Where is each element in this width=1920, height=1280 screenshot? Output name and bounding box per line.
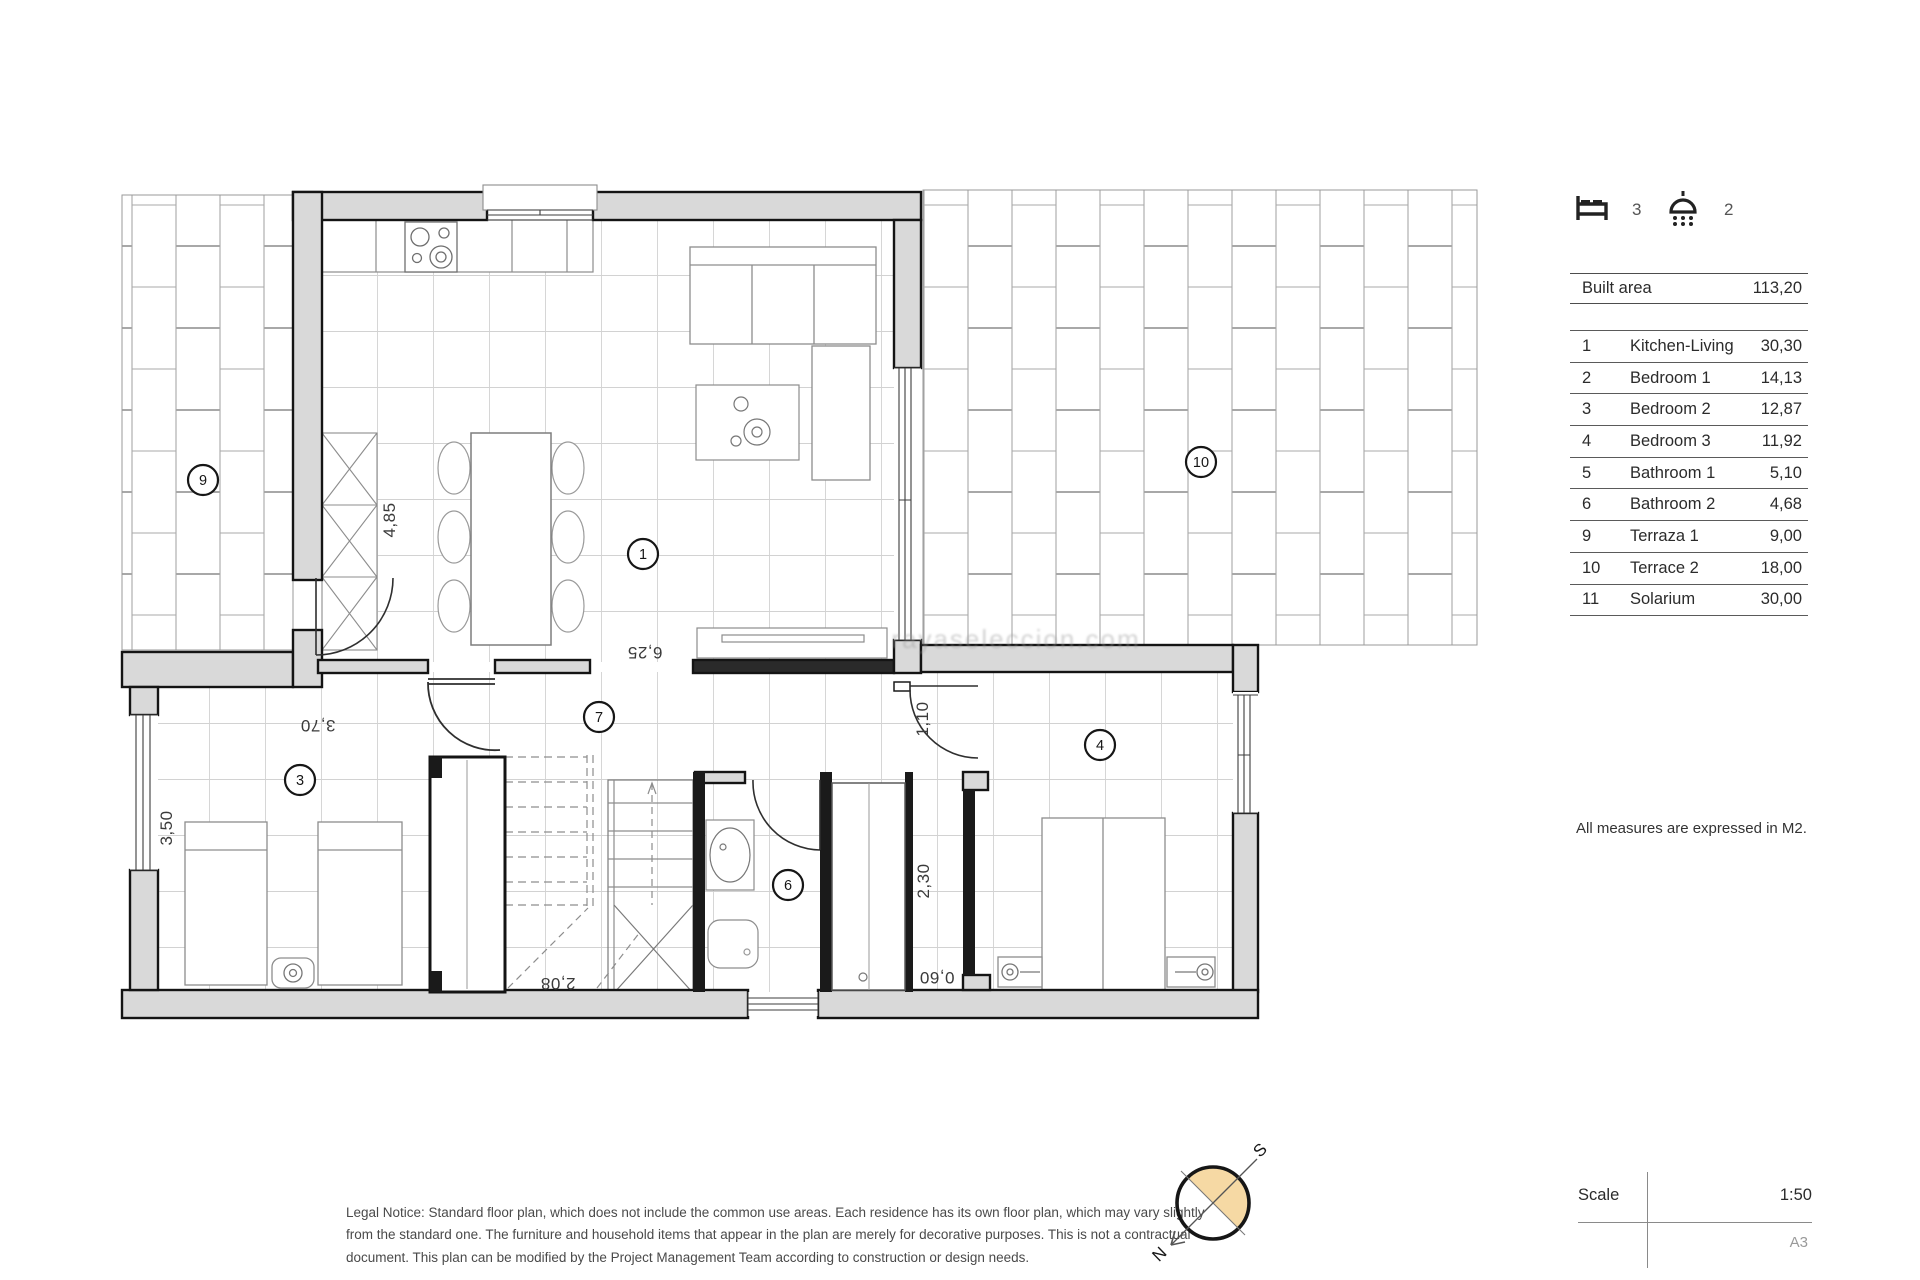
area-row: 4Bedroom 311,92	[1570, 426, 1808, 458]
area-row-value: 11,92	[1762, 432, 1808, 451]
svg-text:6: 6	[784, 878, 792, 894]
area-row-value: 30,30	[1761, 337, 1808, 356]
area-row-number: 9	[1570, 527, 1630, 546]
svg-text:9: 9	[199, 473, 207, 489]
legal-notice-line: Legal Notice: Standard floor plan, which…	[346, 1202, 1204, 1224]
area-row: 6Bathroom 24,68	[1570, 489, 1808, 521]
area-row-value: 9,00	[1770, 527, 1808, 546]
area-row: 11Solarium30,00	[1570, 585, 1808, 617]
kitchen-cabinet-shelves	[322, 433, 377, 650]
area-row-number: 11	[1570, 590, 1630, 609]
area-row: 1Kitchen-Living30,30	[1570, 331, 1808, 363]
dining-table	[438, 433, 584, 645]
area-row-number: 3	[1570, 400, 1630, 419]
area-row-number: 1	[1570, 337, 1630, 356]
area-row-value: 18,00	[1761, 559, 1808, 578]
floorplan-sheet: 1 3 4 6 7 9 10 4,85 6,25 3,70 3,50 1,10 …	[0, 0, 1920, 1280]
toilet	[708, 920, 758, 968]
bed-icon	[1576, 194, 1608, 222]
shower-icon	[1668, 190, 1698, 228]
room-circle-kitchen-living: 1	[628, 539, 658, 569]
area-row-number: 4	[1570, 432, 1630, 451]
areas-table: Built area 113,20 1Kitchen-Living30,302B…	[1570, 273, 1808, 616]
legal-notice-line: document. This plan can be modified by t…	[346, 1247, 1204, 1269]
area-row-number: 5	[1570, 464, 1630, 483]
dim-kitchen-depth: 4,85	[380, 502, 399, 537]
area-row-value: 5,10	[1770, 464, 1808, 483]
area-row-number: 6	[1570, 495, 1630, 514]
room-circle-bedroom3: 4	[1085, 730, 1115, 760]
stove-icon	[405, 222, 457, 272]
dim-bedroom2-width: 3,70	[300, 716, 335, 735]
room-circle-terrace2: 10	[1186, 447, 1216, 477]
scale-block: Scale 1:50 A3	[1578, 1172, 1812, 1268]
built-area-value: 113,20	[1753, 279, 1808, 298]
dim-bedroom3-door: 1,10	[913, 701, 932, 736]
scale-label: Scale	[1578, 1186, 1619, 1205]
legal-notice-line: from the standard one. The furniture and…	[346, 1224, 1204, 1246]
area-row-name: Bedroom 1	[1630, 369, 1761, 388]
area-row-value: 30,00	[1761, 590, 1808, 609]
area-row: 2Bedroom 114,13	[1570, 363, 1808, 395]
area-row-name: Kitchen-Living	[1630, 337, 1761, 356]
beds-count: 3	[1632, 200, 1641, 220]
svg-text:7: 7	[595, 710, 603, 726]
area-row-name: Terraza 1	[1630, 527, 1770, 546]
area-row-name: Bathroom 2	[1630, 495, 1770, 514]
area-rows: 1Kitchen-Living30,302Bedroom 114,133Bedr…	[1570, 330, 1808, 616]
svg-text:3: 3	[296, 773, 304, 789]
dim-stairs-width: 2,08	[540, 974, 575, 993]
room-circle-hall: 7	[584, 702, 614, 732]
terrace-1-tiles	[122, 195, 293, 650]
dim-bedroom2-depth: 3,50	[157, 810, 176, 845]
amenities-row: 3 2	[1576, 190, 1816, 230]
svg-text:10: 10	[1193, 455, 1209, 471]
dim-closet-width: 0,60	[919, 968, 954, 987]
area-row: 10Terrace 218,00	[1570, 553, 1808, 585]
room-circle-terraza1: 9	[188, 465, 218, 495]
area-row-value: 12,87	[1761, 400, 1808, 419]
terrace-2-tiles	[923, 190, 1477, 645]
room-circle-bathroom2: 6	[773, 870, 803, 900]
compass-north-label: N	[1148, 1243, 1170, 1264]
area-row-name: Terrace 2	[1630, 559, 1761, 578]
compass-rose: N S	[1147, 1138, 1279, 1264]
area-row-name: Bathroom 1	[1630, 464, 1770, 483]
paper-size: A3	[1790, 1234, 1808, 1251]
coffee-table	[696, 385, 799, 460]
area-row-name: Solarium	[1630, 590, 1761, 609]
area-row: 9Terraza 19,00	[1570, 521, 1808, 553]
area-row-number: 10	[1570, 559, 1630, 578]
area-row-value: 4,68	[1770, 495, 1808, 514]
area-row: 5Bathroom 15,10	[1570, 458, 1808, 490]
legal-notice: Legal Notice: Standard floor plan, which…	[346, 1202, 1204, 1269]
bedroom2-closet	[430, 757, 505, 992]
scale-divider-horizontal	[1578, 1222, 1812, 1223]
measures-note: All measures are expressed in M2.	[1576, 820, 1807, 837]
built-area-row: Built area 113,20	[1570, 273, 1808, 304]
scale-value: 1:50	[1780, 1186, 1812, 1205]
room-circle-bedroom2: 3	[285, 765, 315, 795]
area-row-name: Bedroom 3	[1630, 432, 1762, 451]
area-row-number: 2	[1570, 369, 1630, 388]
showers-count: 2	[1724, 200, 1733, 220]
washbasin	[706, 820, 754, 890]
compass-south-label: S	[1249, 1139, 1270, 1161]
svg-text:1: 1	[639, 547, 647, 563]
tv-cabinet	[697, 628, 887, 658]
bedroom3-wardrobe	[832, 783, 905, 990]
area-row-name: Bedroom 2	[1630, 400, 1761, 419]
scale-divider-vertical	[1647, 1172, 1648, 1268]
area-row: 3Bedroom 212,87	[1570, 394, 1808, 426]
area-row-value: 14,13	[1761, 369, 1808, 388]
dim-wardrobe-depth: 2,30	[914, 863, 933, 898]
built-area-label: Built area	[1570, 279, 1753, 298]
dim-living-width: 6,25	[627, 643, 662, 662]
svg-text:4: 4	[1096, 738, 1104, 754]
watermark: rayaseleccion.com	[891, 624, 1140, 654]
